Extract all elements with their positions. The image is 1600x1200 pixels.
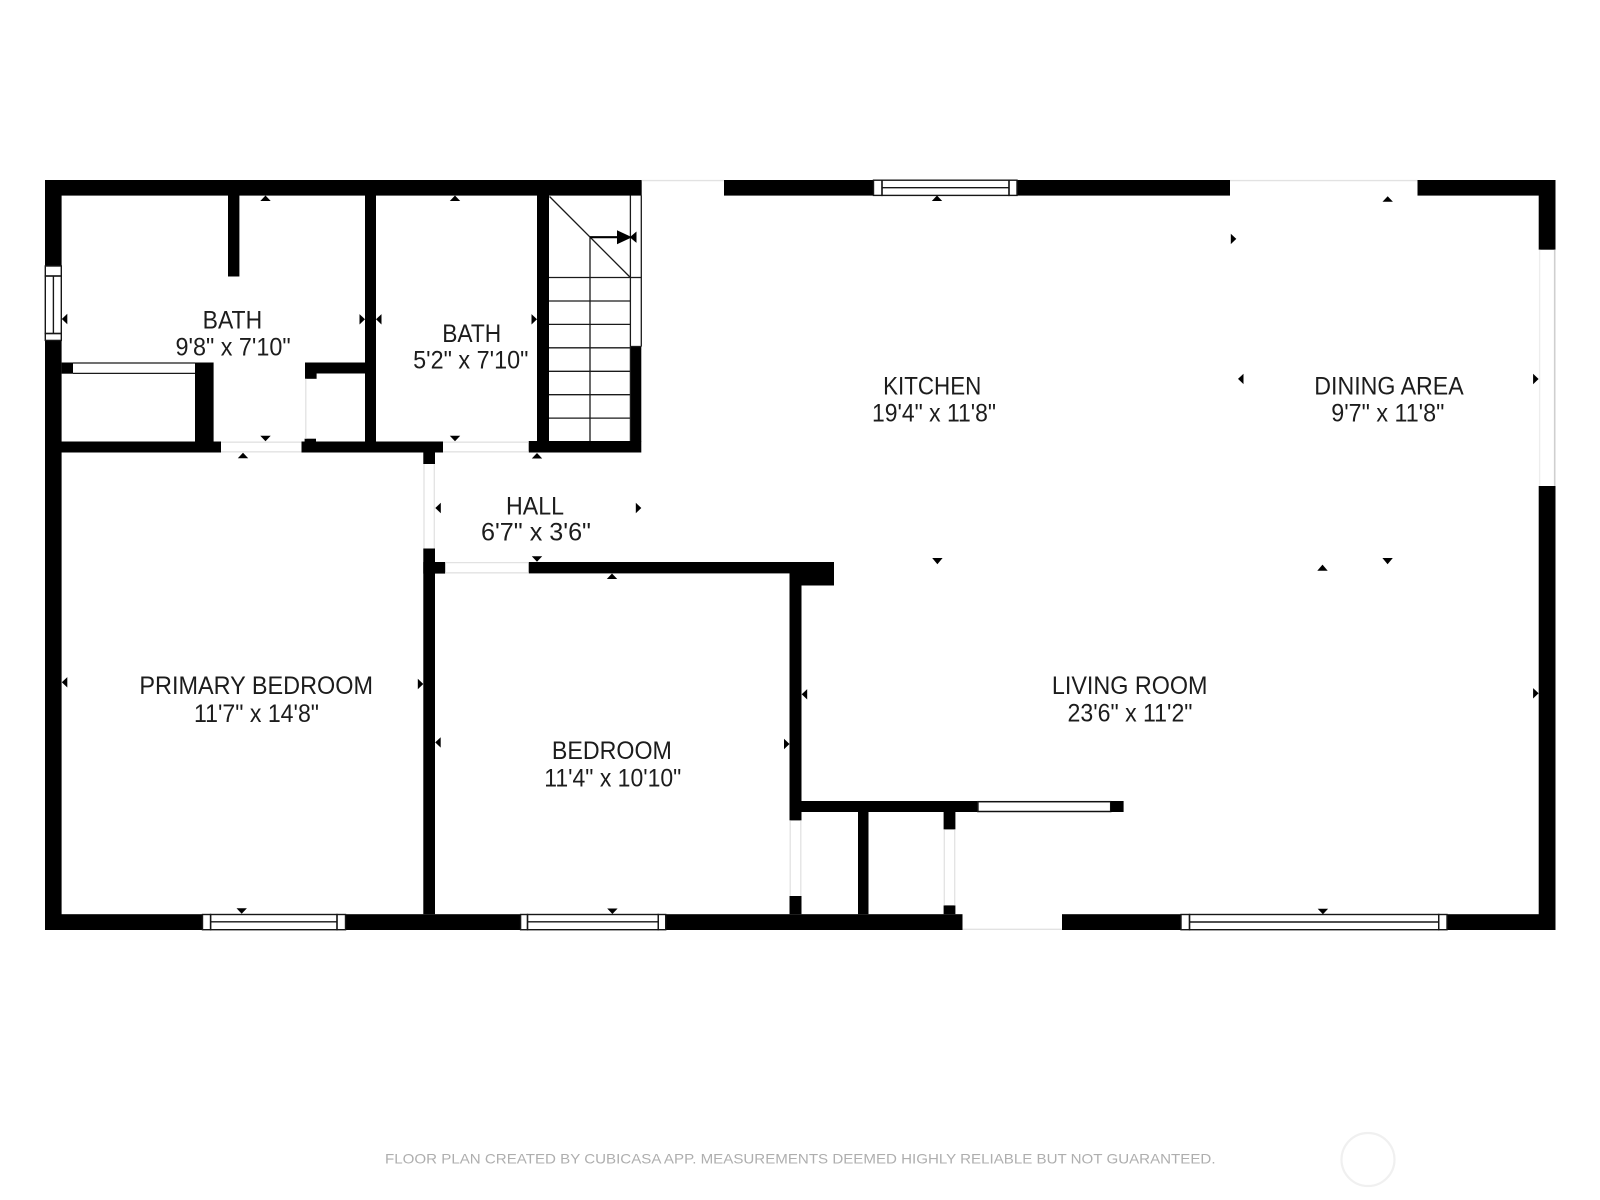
svg-text:BATH: BATH [203,306,263,334]
svg-text:BATH: BATH [442,320,501,348]
svg-text:LIVING ROOM: LIVING ROOM [1052,672,1208,700]
svg-text:FLOOR PLAN CREATED BY CUBICASA: FLOOR PLAN CREATED BY CUBICASA APP. MEAS… [385,1150,1216,1166]
svg-text:9'8" x 7'10": 9'8" x 7'10" [176,334,291,362]
svg-text:19'4" x 11'8": 19'4" x 11'8" [872,400,996,428]
svg-text:BEDROOM: BEDROOM [552,737,672,765]
svg-text:6'7" x 3'6": 6'7" x 3'6" [481,519,591,547]
svg-text:11'7" x 14'8": 11'7" x 14'8" [194,700,319,728]
svg-text:HALL: HALL [506,492,564,520]
svg-text:11'4" x 10'10": 11'4" x 10'10" [544,765,681,793]
svg-text:23'6" x 11'2": 23'6" x 11'2" [1068,700,1193,728]
svg-text:5'2" x 7'10": 5'2" x 7'10" [413,347,528,375]
svg-text:DINING AREA: DINING AREA [1314,373,1464,401]
svg-text:9'7" x 11'8": 9'7" x 11'8" [1331,400,1444,428]
svg-text:PRIMARY BEDROOM: PRIMARY BEDROOM [139,672,373,700]
svg-text:KITCHEN: KITCHEN [883,372,981,400]
